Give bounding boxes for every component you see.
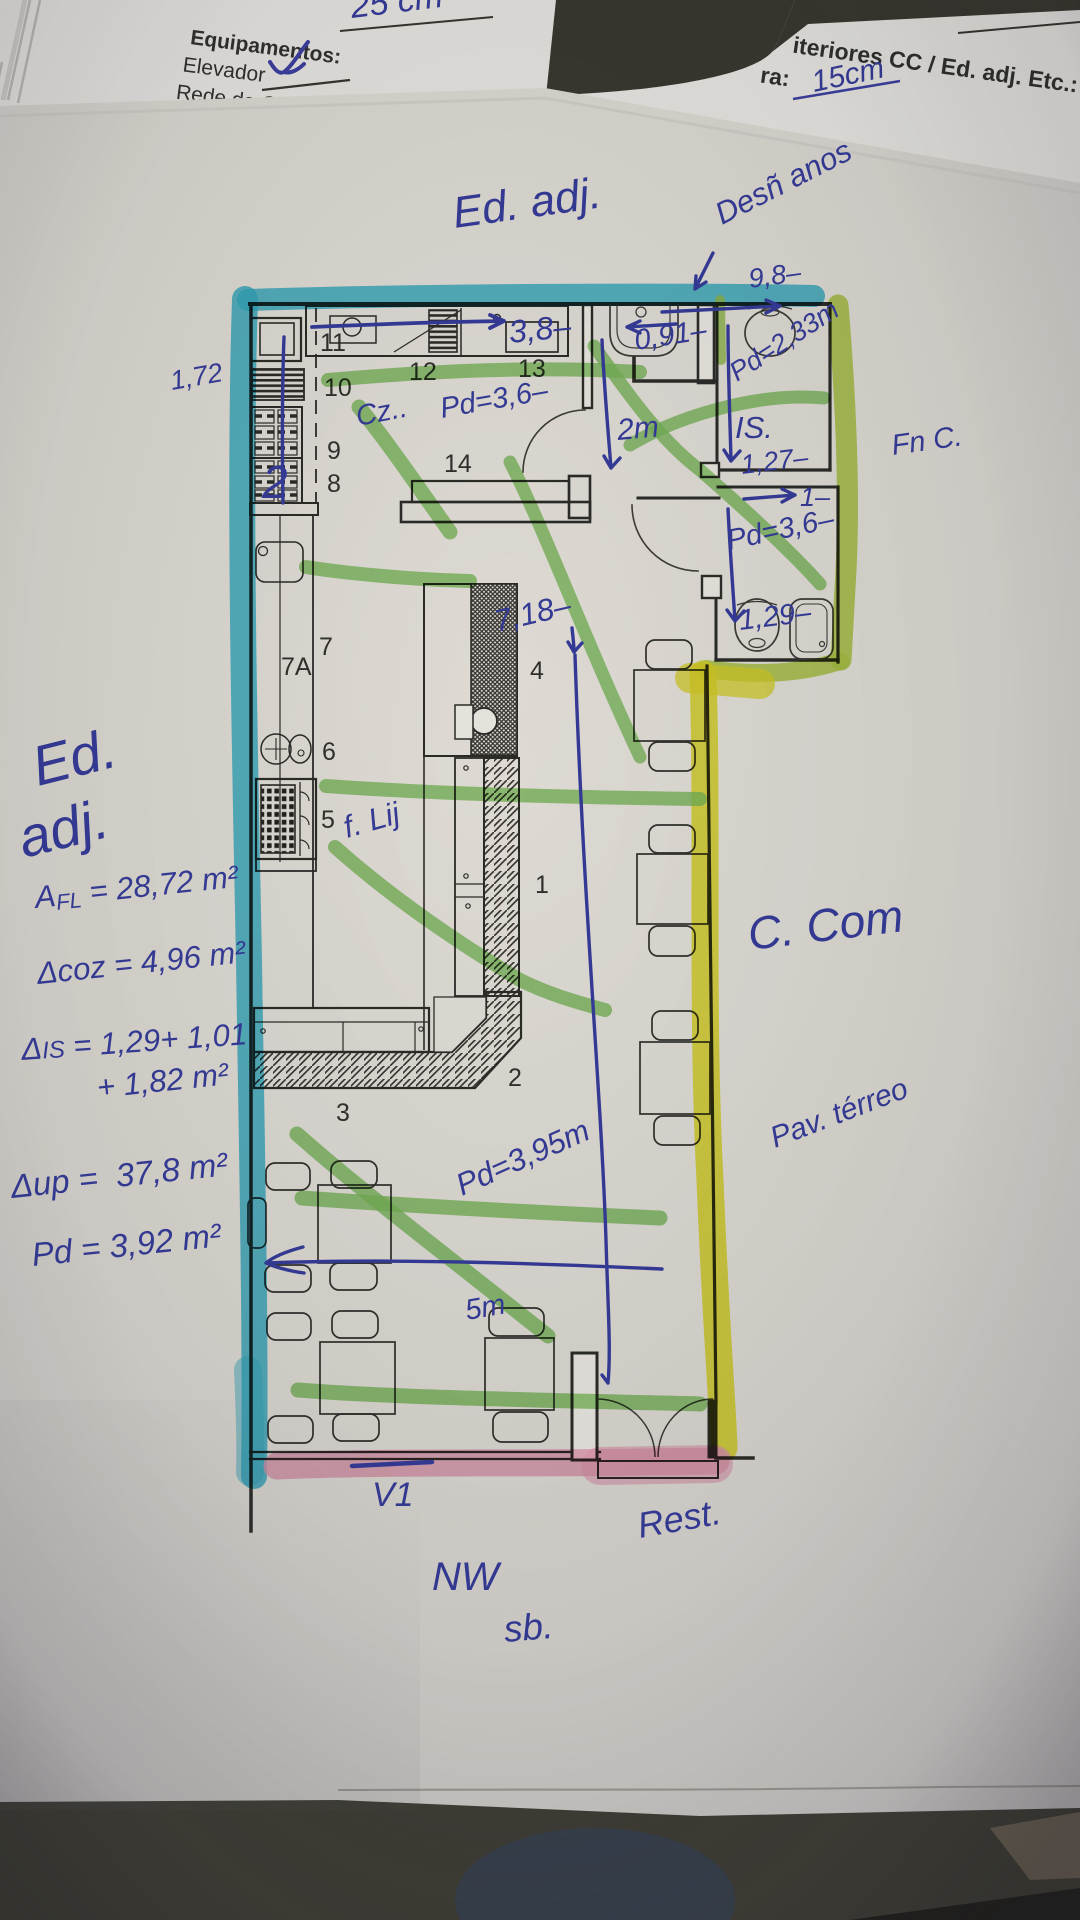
svg-text:2: 2 [508, 1064, 522, 1092]
svg-text:3: 3 [336, 1099, 350, 1127]
svg-text:7: 7 [319, 633, 333, 661]
svg-text:5: 5 [321, 806, 335, 834]
svg-text:ra:: ra: [759, 62, 792, 92]
svg-text:8: 8 [327, 470, 341, 498]
svg-text:2m: 2m [615, 410, 660, 447]
svg-text:2: 2 [261, 456, 288, 508]
svg-text:7A: 7A [281, 653, 312, 681]
svg-text:14: 14 [444, 450, 472, 478]
svg-text:sb.: sb. [502, 1605, 555, 1650]
svg-text:IS.: IS. [735, 410, 773, 445]
svg-text:6: 6 [322, 738, 336, 766]
svg-text:1: 1 [535, 871, 549, 899]
svg-text:NW: NW [432, 1555, 502, 1599]
svg-text:3,8–: 3,8– [507, 308, 573, 350]
svg-text:11: 11 [320, 329, 346, 357]
svg-text:9: 9 [327, 437, 341, 465]
svg-text:4: 4 [530, 657, 544, 685]
